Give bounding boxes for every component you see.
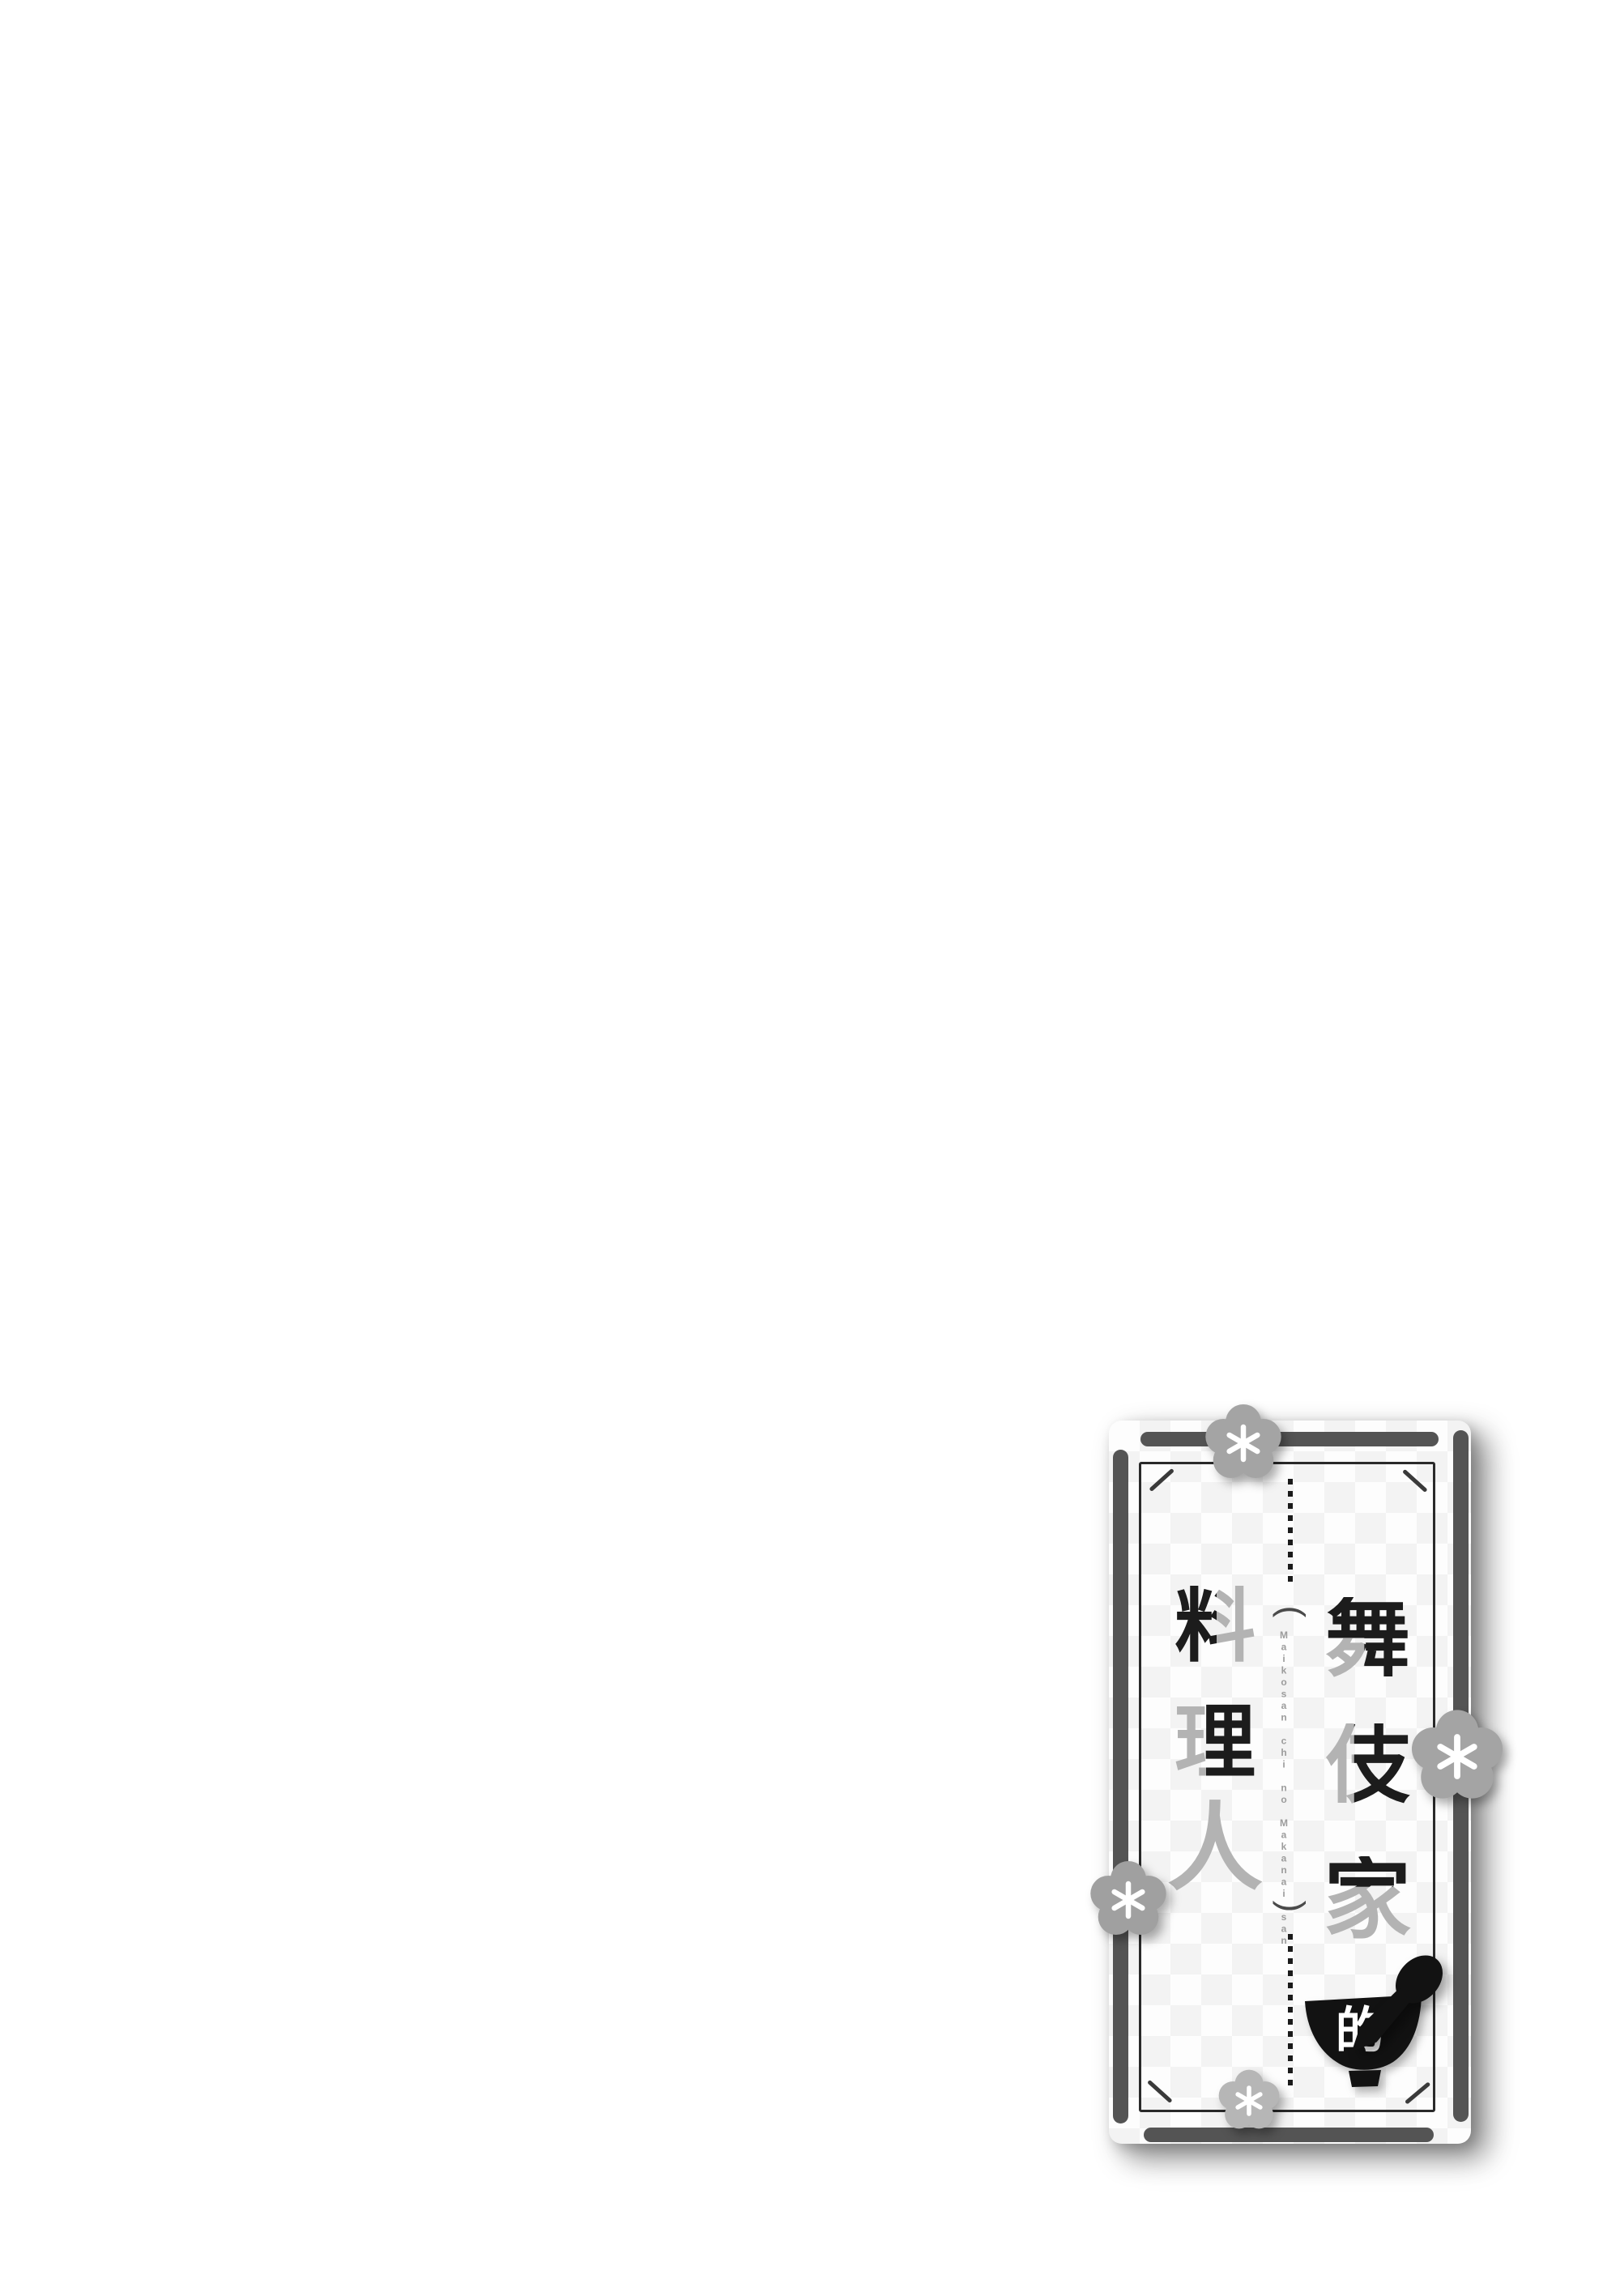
frame-bar-top <box>1140 1432 1439 1446</box>
title-kanji-gi: 伎 伎 <box>1325 1723 1410 1808</box>
blank-manga-page: ( Maikosan chi no Makanai san ) 舞 舞 伎 伎 … <box>0 0 1620 2296</box>
title-kanji-ka: 家 家 <box>1324 1856 1411 1944</box>
dashed-divider-top <box>1288 1479 1293 1587</box>
spoon-icon <box>1371 1947 1484 2085</box>
romaji-paren-close: ) <box>1274 1890 1308 1923</box>
title-kanji-mai: 舞 舞 <box>1325 1597 1410 1682</box>
romaji-subtitle: Maikosan chi no Makanai san <box>1278 1629 1290 1905</box>
frame-bar-left <box>1113 1450 1128 2123</box>
title-kanji-ri: 理 理 <box>1174 1702 1255 1783</box>
romaji-paren-open: ( <box>1274 1595 1308 1628</box>
dashed-divider-bottom <box>1288 1934 1293 2088</box>
plum-blossom-icon <box>1088 1859 1169 1940</box>
title-kanji-nin: 人 <box>1167 1801 1263 1897</box>
frame-bar-bottom <box>1144 2128 1434 2142</box>
plum-blossom-icon <box>1409 1708 1506 1805</box>
plum-blossom-icon <box>1217 2068 1281 2133</box>
title-kanji-ryou: 料 料 <box>1174 1586 1255 1667</box>
plum-blossom-icon <box>1203 1403 1284 1484</box>
